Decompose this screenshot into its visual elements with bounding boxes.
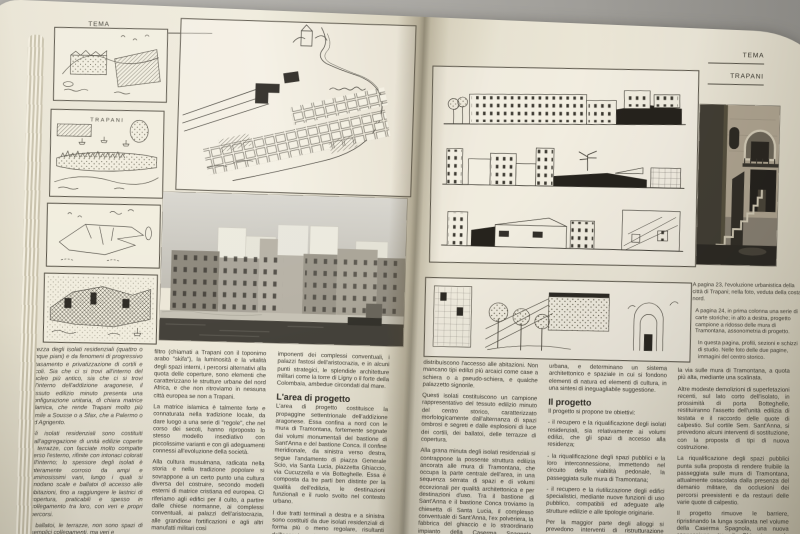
elevation-row-3 [437, 198, 688, 260]
map-title-trapani: TRAPANI [90, 117, 124, 124]
paragraph: Per la maggior parte degli alloggi si pr… [545, 520, 664, 534]
paragraph: Il progetto rimuove le barriere, riprist… [676, 511, 788, 534]
header-rule [708, 83, 764, 85]
paragraph: Altre modeste demolizioni di superfetazi… [677, 386, 789, 452]
paragraph: filtro (chiamati a Trapani con il toponi… [154, 349, 267, 402]
right-page-header: TEMA TRAPANI [708, 43, 765, 86]
paragraph: - la riqualificazione degli spazi pubbli… [547, 453, 666, 485]
magazine-spread: TEMA [0, 0, 800, 534]
elevation-row-2 [438, 137, 689, 196]
historic-map-engraving-1 [53, 27, 168, 103]
text-column-right-2: urbana, e determinano un sistema archite… [545, 364, 668, 534]
paragraph: - il recupero e la riqualificazione degl… [547, 420, 666, 452]
elevation-row-1 [440, 76, 690, 132]
paragraph: Gli isolati residenziali sono costituiti… [31, 431, 143, 519]
paragraph: Il progetto si propone tre obiettivi: [548, 409, 666, 419]
courtyard-staircase-photo [696, 104, 780, 266]
paragraph: la via sulle mura di Tramontana, a quota… [678, 368, 790, 383]
paragraph: I due tratti terminali a destra e a sini… [272, 510, 385, 534]
paragraph: I ballatoi, le terrazze, non sono spazi … [31, 523, 143, 534]
section-heading-il-progetto: Il progetto [548, 397, 666, 409]
paragraph: La riqualificazione degli spazi pubblici… [677, 456, 789, 508]
coastal-buildings-photo [159, 192, 407, 347]
historic-map-engraving-4 [43, 273, 158, 345]
left-page: TEMA [0, 0, 424, 534]
caption-page-24: A pagina 24, in prima colonna una serie … [692, 308, 800, 337]
paragraph: - il recupero e la riutilizzazione degli… [546, 487, 665, 519]
paragraph: urbana, e determinano un sistema archite… [549, 364, 668, 396]
text-column-left-2: filtro (chiamati a Trapani con il toponi… [151, 349, 266, 534]
historic-map-engraving-2: TRAPANI [49, 109, 165, 199]
page-kicker-trapani: TRAPANI [730, 73, 764, 81]
text-column-right-3: la via sulle mura di Tramontana, a quota… [676, 368, 789, 534]
historic-map-plan-3 [46, 203, 161, 269]
paragraph: Alla grana minuta degli isolati residenz… [417, 448, 536, 534]
text-column-right-1: distribuiscono l'accesso alle abitazioni… [417, 360, 539, 534]
axonometric-city-drawing [175, 18, 416, 197]
page-kicker-tema: TEMA [743, 52, 765, 59]
street-elevations-panel [429, 66, 699, 268]
caption-this-page: In questa pagina, profili, sezioni e sch… [692, 340, 800, 362]
paragraph: Questi isolati costituiscono un campione… [421, 393, 538, 448]
text-column-left-3: imponenti dei complessi conventuali, i p… [272, 352, 390, 534]
magazine-photo-scene: TEMA [0, 0, 800, 534]
text-column-left-1: altezza degli isolati residenziali (quat… [31, 347, 143, 534]
paragraph: Alla cultura musulmana, radicata nella s… [151, 459, 264, 534]
right-page: TEMA TRAPANI [400, 17, 800, 534]
caption-page-23: A pagina 23, l'evoluzione urbanistica de… [692, 282, 800, 304]
header-rule [708, 62, 764, 64]
study-sketches-panel [423, 277, 692, 363]
paragraph: L'area di progetto costituisce la propag… [273, 404, 388, 510]
figure-captions-block: A pagina 23, l'evoluzione urbanistica de… [692, 282, 800, 367]
paragraph: altezza degli isolati residenziali (quat… [31, 347, 143, 427]
paragraph: La matrice islamica è talmente forte e c… [153, 404, 266, 457]
paragraph: imponenti dei complessi conventuali, i p… [277, 352, 390, 392]
paragraph: distribuiscono l'accesso alle abitazioni… [422, 360, 538, 393]
